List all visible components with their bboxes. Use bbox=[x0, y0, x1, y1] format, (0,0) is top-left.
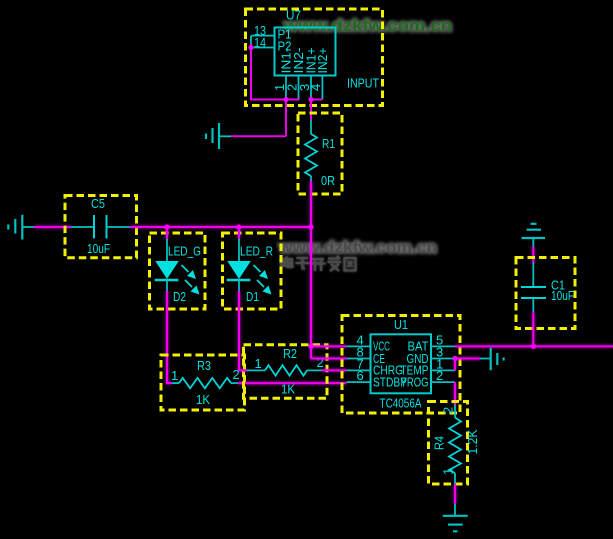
svg-text:10uF: 10uF bbox=[87, 241, 110, 256]
svg-text:INPUT: INPUT bbox=[347, 76, 379, 91]
svg-text:R4: R4 bbox=[432, 436, 447, 450]
svg-text:6: 6 bbox=[357, 368, 364, 383]
svg-text:www.dzkfw.com.cn: www.dzkfw.com.cn bbox=[283, 16, 452, 35]
svg-text:D1: D1 bbox=[246, 289, 259, 304]
svg-text:LED_R: LED_R bbox=[240, 244, 273, 259]
svg-text:U7: U7 bbox=[286, 8, 301, 23]
svg-text:10uF: 10uF bbox=[551, 288, 574, 303]
svg-text:1: 1 bbox=[255, 356, 262, 371]
svg-text:2: 2 bbox=[233, 367, 240, 382]
svg-text:R2: R2 bbox=[283, 346, 297, 361]
svg-text:2: 2 bbox=[441, 407, 456, 414]
svg-text:1.2K: 1.2K bbox=[465, 429, 480, 454]
svg-text:PROG: PROG bbox=[401, 374, 429, 389]
svg-text:R1: R1 bbox=[322, 136, 335, 151]
svg-text:C5: C5 bbox=[91, 196, 105, 211]
svg-text:U1: U1 bbox=[394, 317, 408, 332]
svg-text:0R: 0R bbox=[321, 173, 335, 188]
svg-text:1: 1 bbox=[441, 468, 456, 475]
svg-text:LED_G: LED_G bbox=[168, 244, 201, 259]
svg-text:4: 4 bbox=[308, 84, 323, 91]
svg-text:R3: R3 bbox=[197, 358, 211, 373]
svg-text:2: 2 bbox=[436, 368, 443, 383]
svg-text:IN2+: IN2+ bbox=[315, 48, 330, 74]
svg-text:www.dzkfw.com.cn: www.dzkfw.com.cn bbox=[278, 240, 437, 257]
svg-text:TC4056A: TC4056A bbox=[380, 396, 422, 411]
svg-text:1: 1 bbox=[171, 368, 178, 383]
svg-text:14: 14 bbox=[254, 35, 266, 50]
svg-text:2: 2 bbox=[317, 355, 324, 370]
svg-text:D2: D2 bbox=[173, 289, 186, 304]
svg-text:1K: 1K bbox=[281, 382, 295, 397]
svg-text:1K: 1K bbox=[196, 392, 210, 407]
